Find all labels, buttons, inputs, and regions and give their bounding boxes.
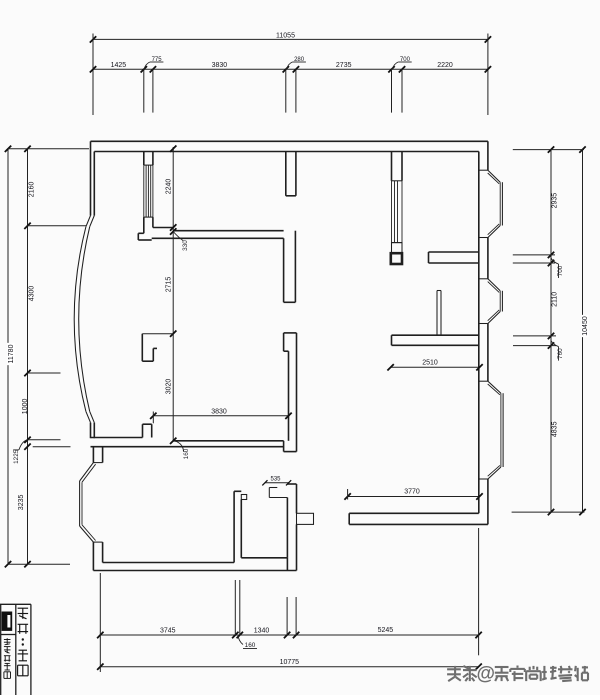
svg-text:2220: 2220 bbox=[437, 62, 453, 69]
svg-text:160: 160 bbox=[183, 448, 190, 459]
svg-text:330: 330 bbox=[182, 240, 189, 251]
svg-text:1000: 1000 bbox=[22, 399, 29, 415]
svg-text:2715: 2715 bbox=[166, 277, 173, 293]
svg-text:3020: 3020 bbox=[166, 379, 173, 395]
svg-text:2240: 2240 bbox=[166, 179, 173, 195]
svg-text:3830: 3830 bbox=[212, 62, 228, 69]
svg-text:10450: 10450 bbox=[582, 316, 589, 336]
svg-text:2160: 2160 bbox=[28, 182, 35, 198]
svg-text:1225: 1225 bbox=[13, 449, 20, 464]
svg-text:280: 280 bbox=[294, 57, 305, 63]
svg-text:2110: 2110 bbox=[552, 292, 559, 307]
svg-text:2935: 2935 bbox=[552, 193, 559, 209]
svg-text:3235: 3235 bbox=[18, 495, 25, 511]
svg-text:4300: 4300 bbox=[28, 286, 35, 302]
svg-text:3770: 3770 bbox=[404, 489, 420, 496]
svg-text:700: 700 bbox=[400, 57, 411, 63]
svg-text:2735: 2735 bbox=[336, 62, 352, 69]
svg-text:11780: 11780 bbox=[8, 344, 15, 363]
svg-text:@: @ bbox=[476, 664, 495, 685]
svg-text:3830: 3830 bbox=[211, 408, 227, 415]
svg-text:10775: 10775 bbox=[280, 659, 300, 666]
svg-text:1425: 1425 bbox=[111, 62, 127, 69]
svg-text:775: 775 bbox=[152, 57, 163, 63]
svg-text:700: 700 bbox=[557, 265, 564, 276]
svg-text:760: 760 bbox=[557, 348, 564, 359]
svg-text:4835: 4835 bbox=[552, 421, 559, 437]
svg-text:3745: 3745 bbox=[160, 627, 176, 634]
svg-text:11055: 11055 bbox=[276, 32, 295, 39]
svg-text:1340: 1340 bbox=[254, 627, 270, 634]
svg-text:2510: 2510 bbox=[422, 360, 438, 367]
svg-text:160: 160 bbox=[245, 642, 256, 649]
svg-text:5245: 5245 bbox=[378, 627, 394, 634]
svg-text:535: 535 bbox=[270, 477, 281, 483]
